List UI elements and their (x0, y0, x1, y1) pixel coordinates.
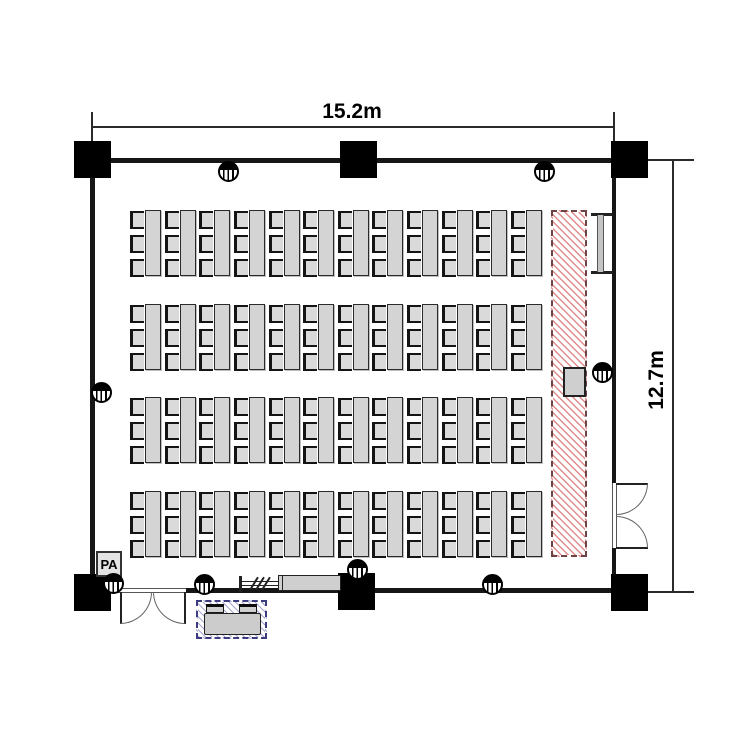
chair (338, 211, 352, 229)
table-unit (130, 210, 161, 276)
chair (234, 516, 248, 534)
table-unit (269, 397, 300, 463)
chair (199, 353, 213, 371)
chair (199, 305, 213, 323)
desk-table (422, 397, 438, 463)
desk-table (214, 491, 230, 557)
table-unit (165, 491, 196, 557)
chair (199, 446, 213, 464)
desk-table (145, 491, 161, 557)
chair (303, 353, 317, 371)
desk-table (353, 491, 369, 557)
chair (442, 329, 456, 347)
outlet-icon (347, 559, 368, 580)
chair (130, 398, 144, 416)
chair (269, 305, 283, 323)
chair (476, 540, 490, 558)
desk-table (249, 304, 265, 370)
desk-table (491, 397, 507, 463)
chair (476, 446, 490, 464)
desk-table (249, 210, 265, 276)
desk-table (318, 397, 334, 463)
chair (442, 422, 456, 440)
chair (511, 329, 525, 347)
chair (303, 492, 317, 510)
outlet-icon (218, 161, 239, 182)
desk-table (387, 304, 403, 370)
chair (372, 516, 386, 534)
chair (338, 329, 352, 347)
chair (372, 446, 386, 464)
desk-table (353, 397, 369, 463)
chair (303, 516, 317, 534)
chair (338, 235, 352, 253)
table-unit (407, 304, 438, 370)
chair (269, 329, 283, 347)
chair (476, 398, 490, 416)
table-unit (269, 491, 300, 557)
chair (511, 353, 525, 371)
table-unit (234, 397, 265, 463)
chair (407, 235, 421, 253)
desk-table (318, 304, 334, 370)
outlet-icon (592, 362, 613, 383)
chair (407, 398, 421, 416)
chair (511, 398, 525, 416)
desk-table (214, 304, 230, 370)
chair (338, 259, 352, 277)
chair (442, 235, 456, 253)
outlet-icon (91, 382, 112, 403)
table-unit (511, 397, 542, 463)
table-unit (303, 210, 334, 276)
chair (199, 329, 213, 347)
desk-table (526, 304, 542, 370)
chair (442, 492, 456, 510)
chair (234, 235, 248, 253)
chair (199, 398, 213, 416)
table-unit (372, 491, 403, 557)
chair (476, 329, 490, 347)
chair (165, 492, 179, 510)
chair (269, 259, 283, 277)
table-unit (199, 210, 230, 276)
chair (165, 422, 179, 440)
outlet-icon (103, 573, 124, 594)
pa-label: PA (100, 557, 117, 572)
chair (234, 398, 248, 416)
desk-table (353, 210, 369, 276)
table-unit (442, 491, 473, 557)
chair (511, 211, 525, 229)
chair (407, 353, 421, 371)
chair (165, 211, 179, 229)
chair (130, 305, 144, 323)
desk-table (457, 491, 473, 557)
table-unit (407, 397, 438, 463)
chair (303, 211, 317, 229)
table-unit (165, 210, 196, 276)
table-unit (372, 304, 403, 370)
desk-table (180, 491, 196, 557)
table-unit (303, 304, 334, 370)
chair (338, 516, 352, 534)
chair (407, 516, 421, 534)
table-unit (338, 304, 369, 370)
desk-table (318, 491, 334, 557)
chair (130, 259, 144, 277)
table-unit (130, 304, 161, 370)
desk-table (214, 397, 230, 463)
chair (338, 398, 352, 416)
chair (511, 259, 525, 277)
table-unit (511, 210, 542, 276)
chair (372, 540, 386, 558)
chair (372, 305, 386, 323)
chair (269, 446, 283, 464)
chair (165, 235, 179, 253)
desk-table (284, 491, 300, 557)
outlet-icon (194, 574, 215, 595)
desk-table (387, 210, 403, 276)
table-unit (372, 210, 403, 276)
chair (511, 492, 525, 510)
chair (199, 211, 213, 229)
table-unit (476, 397, 507, 463)
desk-table (491, 491, 507, 557)
chair (303, 446, 317, 464)
chair (303, 540, 317, 558)
chair (372, 329, 386, 347)
chair (234, 422, 248, 440)
chair (234, 353, 248, 371)
chair (476, 422, 490, 440)
desk-table (526, 397, 542, 463)
table-unit (338, 210, 369, 276)
desk-table (180, 397, 196, 463)
chair (234, 329, 248, 347)
chair (130, 235, 144, 253)
chair (476, 516, 490, 534)
chair (130, 446, 144, 464)
chair (234, 540, 248, 558)
chair (407, 305, 421, 323)
chair (130, 329, 144, 347)
chair (234, 492, 248, 510)
desk-table (145, 397, 161, 463)
chair (130, 422, 144, 440)
chair (442, 211, 456, 229)
chair (303, 422, 317, 440)
desk-table (526, 491, 542, 557)
chair (199, 259, 213, 277)
chair (234, 259, 248, 277)
chair (476, 211, 490, 229)
table-unit (442, 210, 473, 276)
chair (130, 353, 144, 371)
chair (476, 492, 490, 510)
desk-table (284, 304, 300, 370)
chair (476, 235, 490, 253)
chair (269, 540, 283, 558)
chair (511, 235, 525, 253)
table-unit (199, 304, 230, 370)
table-unit (372, 397, 403, 463)
seating-grid (0, 0, 750, 750)
table-unit (303, 397, 334, 463)
chair (338, 492, 352, 510)
desk-table (387, 397, 403, 463)
chair (269, 235, 283, 253)
desk-table (491, 304, 507, 370)
chair (303, 235, 317, 253)
chair (511, 422, 525, 440)
chair (269, 353, 283, 371)
chair (372, 259, 386, 277)
operator-chair (239, 604, 257, 613)
desk-table (180, 304, 196, 370)
chair (442, 353, 456, 371)
chair (372, 353, 386, 371)
chair (338, 305, 352, 323)
chair (476, 259, 490, 277)
chair (199, 235, 213, 253)
chair (269, 516, 283, 534)
desk-table (422, 210, 438, 276)
operator-chair (206, 604, 224, 613)
desk-table (145, 210, 161, 276)
desk-table (145, 304, 161, 370)
chair (511, 305, 525, 323)
desk-table (457, 397, 473, 463)
chair (269, 211, 283, 229)
chair (165, 259, 179, 277)
table-unit (476, 304, 507, 370)
chair (165, 353, 179, 371)
chair (130, 492, 144, 510)
chair (165, 329, 179, 347)
desk-table (249, 397, 265, 463)
chair (199, 540, 213, 558)
table-unit (407, 210, 438, 276)
chair (372, 492, 386, 510)
chair (269, 422, 283, 440)
outlet-icon (482, 574, 503, 595)
chair (338, 353, 352, 371)
chair (269, 492, 283, 510)
chair (407, 422, 421, 440)
chair (130, 540, 144, 558)
chair (511, 540, 525, 558)
chair (165, 540, 179, 558)
chair (407, 259, 421, 277)
floor-plan: 15.2m 12.7m PA (0, 0, 750, 750)
table-unit (234, 304, 265, 370)
chair (476, 353, 490, 371)
desk-table (457, 210, 473, 276)
chair (372, 235, 386, 253)
chair (511, 446, 525, 464)
table-unit (199, 491, 230, 557)
chair (338, 422, 352, 440)
chair (269, 398, 283, 416)
table-unit (269, 210, 300, 276)
side-table-end-cap (282, 576, 283, 590)
chair (165, 446, 179, 464)
chair (372, 398, 386, 416)
table-unit (338, 491, 369, 557)
chair (511, 516, 525, 534)
chair (442, 540, 456, 558)
desk-table (457, 304, 473, 370)
chair (165, 398, 179, 416)
chair (442, 398, 456, 416)
table-unit (165, 397, 196, 463)
table-unit (407, 491, 438, 557)
side-table (278, 575, 341, 591)
operator-desk-area (196, 600, 267, 639)
chair (234, 305, 248, 323)
desk-table (284, 210, 300, 276)
outlet-icon (534, 161, 555, 182)
table-unit (511, 304, 542, 370)
chair (442, 516, 456, 534)
chair (442, 259, 456, 277)
chair (338, 446, 352, 464)
desk-table (526, 210, 542, 276)
table-unit (269, 304, 300, 370)
chair (407, 329, 421, 347)
table-unit (476, 491, 507, 557)
desk-table (180, 210, 196, 276)
chair (165, 305, 179, 323)
chair (234, 211, 248, 229)
desk-table (318, 210, 334, 276)
desk-table (387, 491, 403, 557)
desk-table (353, 304, 369, 370)
table-unit (165, 304, 196, 370)
chair (303, 329, 317, 347)
chair (303, 305, 317, 323)
chair (442, 305, 456, 323)
chair (442, 446, 456, 464)
table-unit (130, 397, 161, 463)
table-unit (338, 397, 369, 463)
desk-table (422, 304, 438, 370)
chair (199, 492, 213, 510)
chair (372, 422, 386, 440)
chair (234, 446, 248, 464)
table-unit (511, 491, 542, 557)
table-unit (303, 491, 334, 557)
desk-table (422, 491, 438, 557)
chair (130, 516, 144, 534)
table-unit (234, 210, 265, 276)
operator-table (204, 613, 261, 635)
chair (303, 259, 317, 277)
desk-table (249, 491, 265, 557)
chair (407, 211, 421, 229)
chair (407, 446, 421, 464)
table-unit (130, 491, 161, 557)
desk-table (284, 397, 300, 463)
chair (130, 211, 144, 229)
chair (338, 540, 352, 558)
chair (199, 516, 213, 534)
chair (372, 211, 386, 229)
table-unit (199, 397, 230, 463)
chair (407, 492, 421, 510)
chair (476, 305, 490, 323)
table-unit (442, 397, 473, 463)
table-unit (476, 210, 507, 276)
chair (165, 516, 179, 534)
table-unit (442, 304, 473, 370)
table-unit (234, 491, 265, 557)
desk-table (214, 210, 230, 276)
desk-table (491, 210, 507, 276)
chair (303, 398, 317, 416)
chair (199, 422, 213, 440)
chair (407, 540, 421, 558)
